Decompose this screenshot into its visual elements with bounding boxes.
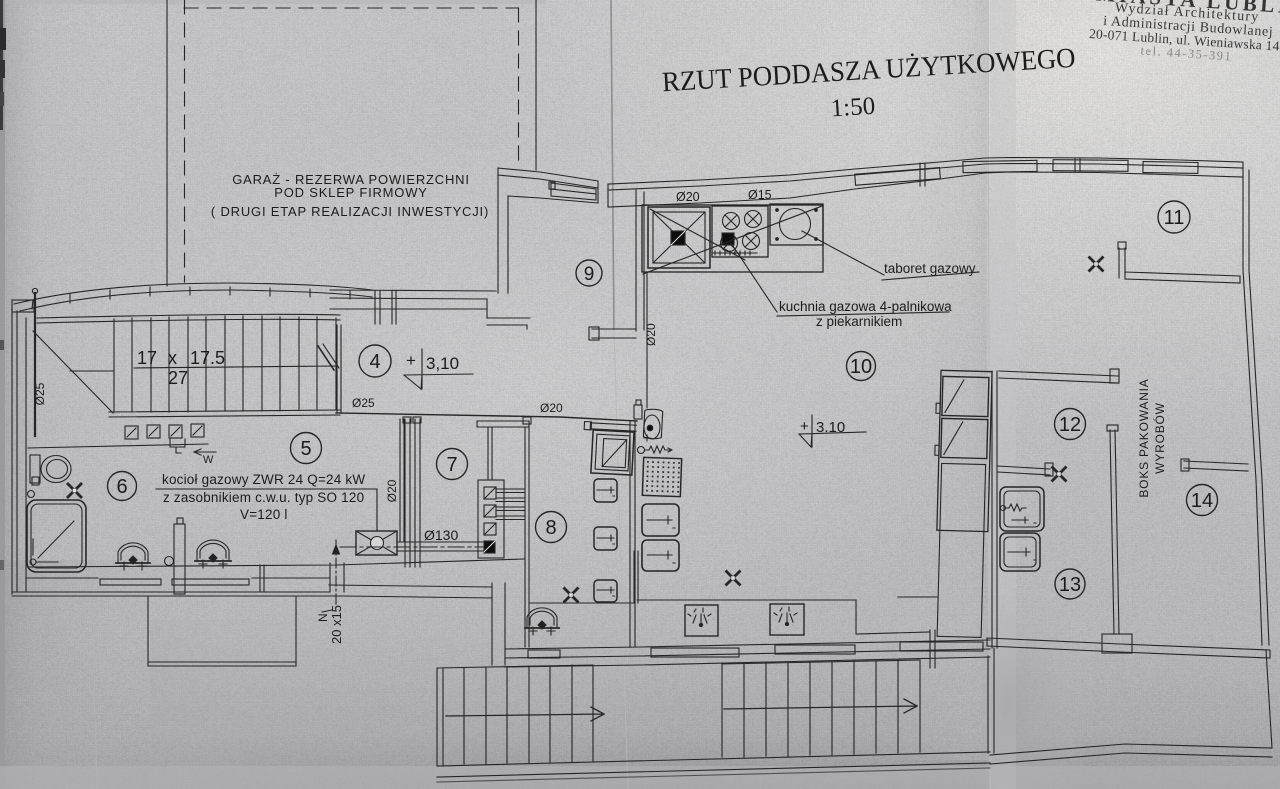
svg-text:z zasobnikiem c.w.u. typ SO 12: z zasobnikiem c.w.u. typ SO 120 bbox=[163, 490, 364, 505]
svg-text:W: W bbox=[203, 454, 214, 466]
svg-text:kocioł gazowy ZWR 24 Q=24 kW: kocioł gazowy ZWR 24 Q=24 kW bbox=[162, 472, 365, 487]
svg-text:Ø20: Ø20 bbox=[644, 323, 658, 346]
svg-text:z piekarnikiem: z piekarnikiem bbox=[816, 314, 902, 329]
svg-text:WYROBÓW: WYROBÓW bbox=[1152, 402, 1167, 474]
svg-text:Ø25: Ø25 bbox=[352, 396, 375, 410]
svg-text:1:50: 1:50 bbox=[830, 93, 876, 123]
svg-text:9: 9 bbox=[584, 264, 595, 285]
svg-text:3.10: 3.10 bbox=[816, 419, 845, 436]
svg-text:BOKS PAKOWANIA: BOKS PAKOWANIA bbox=[1137, 378, 1151, 497]
svg-text:POD SKLEP FIRMOWY: POD SKLEP FIRMOWY bbox=[274, 185, 428, 200]
svg-text:7: 7 bbox=[446, 454, 457, 476]
svg-text:Ø20: Ø20 bbox=[676, 190, 700, 204]
svg-text:27: 27 bbox=[168, 368, 188, 388]
svg-text:Ø25: Ø25 bbox=[33, 382, 47, 405]
svg-text:17: 17 bbox=[137, 348, 157, 368]
svg-text:Ø20: Ø20 bbox=[385, 479, 399, 502]
svg-text:kuchnia gazowa 4-palnikowa: kuchnia gazowa 4-palnikowa bbox=[779, 299, 952, 314]
svg-text:V=120 l: V=120 l bbox=[240, 507, 288, 522]
svg-text:+: + bbox=[800, 418, 809, 435]
svg-text:11: 11 bbox=[1164, 207, 1185, 229]
svg-text:12: 12 bbox=[1059, 414, 1081, 436]
svg-text:17.5: 17.5 bbox=[190, 348, 225, 368]
svg-text:8: 8 bbox=[545, 517, 556, 539]
svg-text:14: 14 bbox=[1191, 490, 1213, 512]
svg-text:6: 6 bbox=[116, 476, 127, 498]
svg-text:Ø15: Ø15 bbox=[748, 188, 772, 202]
svg-text:4: 4 bbox=[369, 351, 380, 373]
svg-text:( DRUGI ETAP REALIZACJI INW: ( DRUGI ETAP REALIZACJI INWESTYCJI) bbox=[211, 204, 489, 219]
svg-text:N: N bbox=[316, 613, 330, 622]
svg-text:3,10: 3,10 bbox=[426, 354, 459, 373]
svg-text:5: 5 bbox=[300, 438, 311, 460]
svg-text:x: x bbox=[168, 348, 177, 368]
svg-text:Ø20: Ø20 bbox=[540, 401, 563, 415]
svg-text:20 x15: 20 x15 bbox=[329, 605, 344, 644]
svg-text:13: 13 bbox=[1059, 574, 1081, 596]
svg-text:10: 10 bbox=[850, 356, 872, 378]
svg-text:Ø130: Ø130 bbox=[424, 527, 458, 543]
svg-text:+: + bbox=[406, 351, 416, 370]
